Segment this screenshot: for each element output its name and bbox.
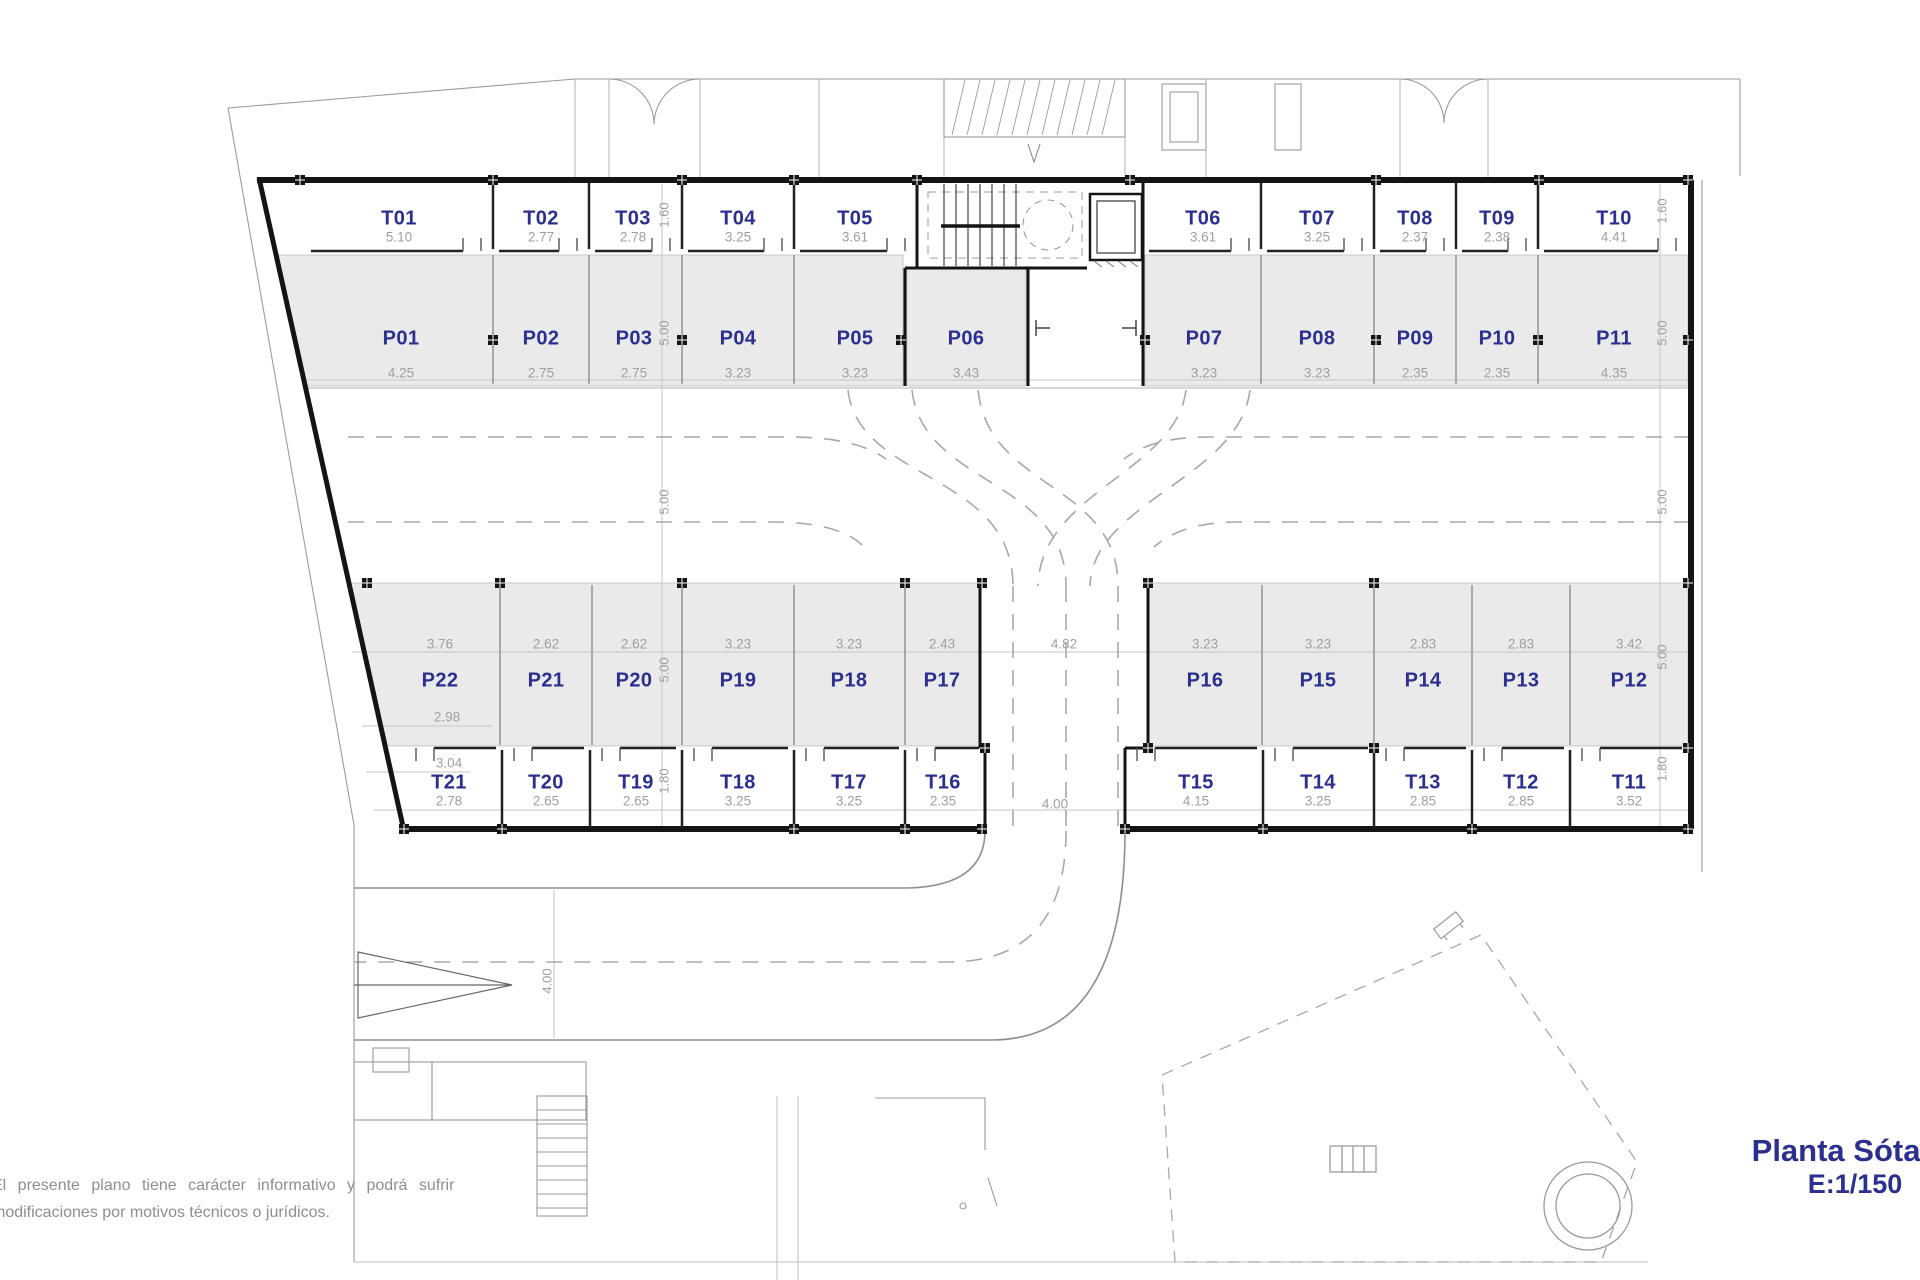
storage-top-t09-label: T09 — [1479, 208, 1515, 231]
storage-bottom-t21-width-dim: 2.78 — [436, 794, 462, 809]
dim-road-width: 4.00 — [540, 968, 555, 993]
parking-bottom-p19-width-dim: 3.23 — [725, 637, 751, 652]
parking-top-p02-label: P02 — [523, 328, 560, 351]
storage-top-t02-label: T02 — [523, 208, 559, 231]
storage-bottom-t19-width-dim: 2.65 — [623, 794, 649, 809]
parking-top-p03-width-dim: 2.75 — [621, 366, 647, 381]
storage-top-t08-width-dim: 2.37 — [1402, 230, 1428, 245]
storage-top-t03-width-dim: 2.78 — [620, 230, 646, 245]
parking-bottom-p12-width-dim: 3.42 — [1616, 637, 1642, 652]
dim-left-0: 1.60 — [657, 202, 672, 227]
parking-top-p06-width-dim: 3.43 — [953, 366, 979, 381]
storage-bottom-t12-width-dim: 2.85 — [1508, 794, 1534, 809]
parking-top-p08-label: P08 — [1299, 328, 1336, 351]
parking-bottom-p14-label: P14 — [1405, 670, 1442, 693]
dim-left-4: 1.80 — [657, 768, 672, 793]
disclaimer-line2: modificaciones por motivos técnicos o ju… — [0, 1199, 454, 1226]
disclaimer-line1: El presente plano tiene carácter informa… — [0, 1172, 454, 1199]
storage-bottom-t17-label: T17 — [831, 772, 867, 795]
parking-bottom-p13-label: P13 — [1503, 670, 1540, 693]
title-block: Planta Sótano E:1/150 — [1745, 1134, 1920, 1200]
storage-bottom-t11-label: T11 — [1612, 772, 1647, 795]
storage-bottom-t17-width-dim: 3.25 — [836, 794, 862, 809]
storage-top-t04-width-dim: 3.25 — [725, 230, 751, 245]
storage-bottom-t12-label: T12 — [1503, 772, 1539, 795]
elevator — [1090, 194, 1142, 260]
dim-left-2: 5.00 — [657, 489, 672, 514]
storage-bottom-t14-label: T14 — [1300, 772, 1336, 795]
storage-bottom-t14-width-dim: 3.25 — [1305, 794, 1331, 809]
parking-top-p11-width-dim: 4.35 — [1601, 366, 1627, 381]
dim-left-3: 5.00 — [657, 657, 672, 682]
storage-top-t10-label: T10 — [1596, 208, 1632, 231]
storage-top-t07-label: T07 — [1299, 208, 1335, 231]
parking-bottom-p21-width-dim: 2.62 — [533, 637, 559, 652]
storage-bottom-t15-label: T15 — [1178, 772, 1214, 795]
storage-bottom-t18-label: T18 — [720, 772, 756, 795]
storage-bottom-t19-label: T19 — [618, 772, 654, 795]
parking-bottom-p22-width-dim: 3.76 — [427, 637, 453, 652]
dim-ramp-bottom: 4.00 — [1042, 797, 1068, 812]
parking-top-p01-width-dim: 4.25 — [388, 366, 414, 381]
parking-top-p05-label: P05 — [837, 328, 874, 351]
parking-top-p04-width-dim: 3.23 — [725, 366, 751, 381]
dim-ramp-central: 4.82 — [1051, 637, 1077, 652]
storage-bottom-t20-label: T20 — [528, 772, 564, 795]
storage-bottom-t21-label: T21 — [431, 772, 467, 795]
pool-steps-icon — [1330, 1146, 1376, 1172]
storage-top-t05-label: T05 — [837, 208, 873, 231]
parking-bottom-p16-width-dim: 3.23 — [1192, 637, 1218, 652]
storage-top-t01-label: T01 — [381, 208, 417, 231]
parking-bottom-p19-label: P19 — [720, 670, 757, 693]
parking-top-p06-label: P06 — [948, 328, 985, 351]
storage-top-t02-width-dim: 2.77 — [528, 230, 554, 245]
storage-bottom-t16-width-dim: 2.35 — [930, 794, 956, 809]
storage-top-t01-width-dim: 5.10 — [386, 230, 412, 245]
storage-top-t06-width-dim: 3.61 — [1190, 230, 1216, 245]
parking-bottom-p18-width-dim: 3.23 — [836, 637, 862, 652]
storage-top-t06-label: T06 — [1185, 208, 1221, 231]
parking-top-p10-width-dim: 2.35 — [1484, 366, 1510, 381]
parking-top-p05-width-dim: 3.23 — [842, 366, 868, 381]
parking-bottom-p20-width-dim: 2.62 — [621, 637, 647, 652]
dim-below-p22-2: 3.04 — [436, 756, 462, 771]
storage-bottom-t13-width-dim: 2.85 — [1410, 794, 1436, 809]
plan-title: Planta Sótano — [1745, 1134, 1920, 1168]
storage-top-t04-label: T04 — [720, 208, 756, 231]
parking-bottom-p21-label: P21 — [528, 670, 565, 693]
parking-top-p09-label: P09 — [1397, 328, 1434, 351]
parking-bottom-p17-width-dim: 2.43 — [929, 637, 955, 652]
parking-bottom-p22-label: P22 — [422, 670, 459, 693]
parking-bottom-p12-label: P12 — [1611, 670, 1648, 693]
storage-bottom-t15-width-dim: 4.15 — [1183, 794, 1209, 809]
parking-top-p02-width-dim: 2.75 — [528, 366, 554, 381]
parking-top-p03-label: P03 — [616, 328, 653, 351]
storage-bottom-t16-label: T16 — [925, 772, 961, 795]
storage-top-t05-width-dim: 3.61 — [842, 230, 868, 245]
dim-right-4: 1.80 — [1655, 756, 1670, 781]
dim-right-0: 1.60 — [1655, 198, 1670, 223]
bench-icon — [1434, 912, 1467, 943]
storage-top-t10-width-dim: 4.41 — [1601, 230, 1627, 245]
dim-right-3: 5.00 — [1655, 644, 1670, 669]
storage-bottom-t11-width-dim: 3.52 — [1616, 794, 1642, 809]
storage-top-t09-width-dim: 2.38 — [1484, 230, 1510, 245]
garden-pool-area — [1162, 912, 1637, 1262]
turning-circle — [1023, 200, 1073, 250]
storage-bottom-t13-label: T13 — [1405, 772, 1441, 795]
parking-bottom-p16-label: P16 — [1187, 670, 1224, 693]
parking-top-p08-width-dim: 3.23 — [1304, 366, 1330, 381]
parking-top-p10-label: P10 — [1479, 328, 1516, 351]
parking-bottom-p13-width-dim: 2.83 — [1508, 637, 1534, 652]
parking-top-p01-label: P01 — [383, 328, 420, 351]
parking-top-p04-label: P04 — [720, 328, 757, 351]
dim-right-2: 5.00 — [1655, 489, 1670, 514]
storage-bottom-t20-width-dim: 2.65 — [533, 794, 559, 809]
spa-icon — [1544, 1162, 1632, 1250]
parking-bottom-p15-width-dim: 3.23 — [1305, 637, 1331, 652]
entry-door-fan-right — [1400, 79, 1488, 123]
parking-bottom-p15-label: P15 — [1300, 670, 1337, 693]
parking-top-p09-width-dim: 2.35 — [1402, 366, 1428, 381]
ramp-road — [354, 831, 1125, 1040]
dim-right-1: 5.00 — [1655, 320, 1670, 345]
dim-below-p22: 2.98 — [434, 710, 460, 725]
exterior-stair — [537, 1096, 587, 1216]
floor-plan: T015.10T022.77T032.78T043.25T053.61T063.… — [0, 0, 1920, 1280]
parking-top-p11-label: P11 — [1596, 328, 1632, 351]
parking-bottom-p14-width-dim: 2.83 — [1410, 637, 1436, 652]
storage-bottom-t18-width-dim: 3.25 — [725, 794, 751, 809]
plan-scale: E:1/150 — [1745, 1168, 1920, 1200]
storage-top-t08-label: T08 — [1397, 208, 1433, 231]
storage-top-t07-width-dim: 3.25 — [1304, 230, 1330, 245]
parking-bottom-p20-label: P20 — [616, 670, 653, 693]
parking-bottom-p17-label: P17 — [924, 670, 961, 693]
storage-top-t03-label: T03 — [615, 208, 651, 231]
parking-bottom-p18-label: P18 — [831, 670, 868, 693]
parking-top-p07-label: P07 — [1186, 328, 1223, 351]
disclaimer: El presente plano tiene carácter informa… — [0, 1172, 454, 1226]
entry-door-fan-left — [609, 79, 700, 124]
site-objects — [354, 1048, 997, 1280]
ramp-arrow — [354, 952, 512, 1018]
dim-left-1: 5.00 — [657, 320, 672, 345]
parking-top-p07-width-dim: 3.23 — [1191, 366, 1217, 381]
